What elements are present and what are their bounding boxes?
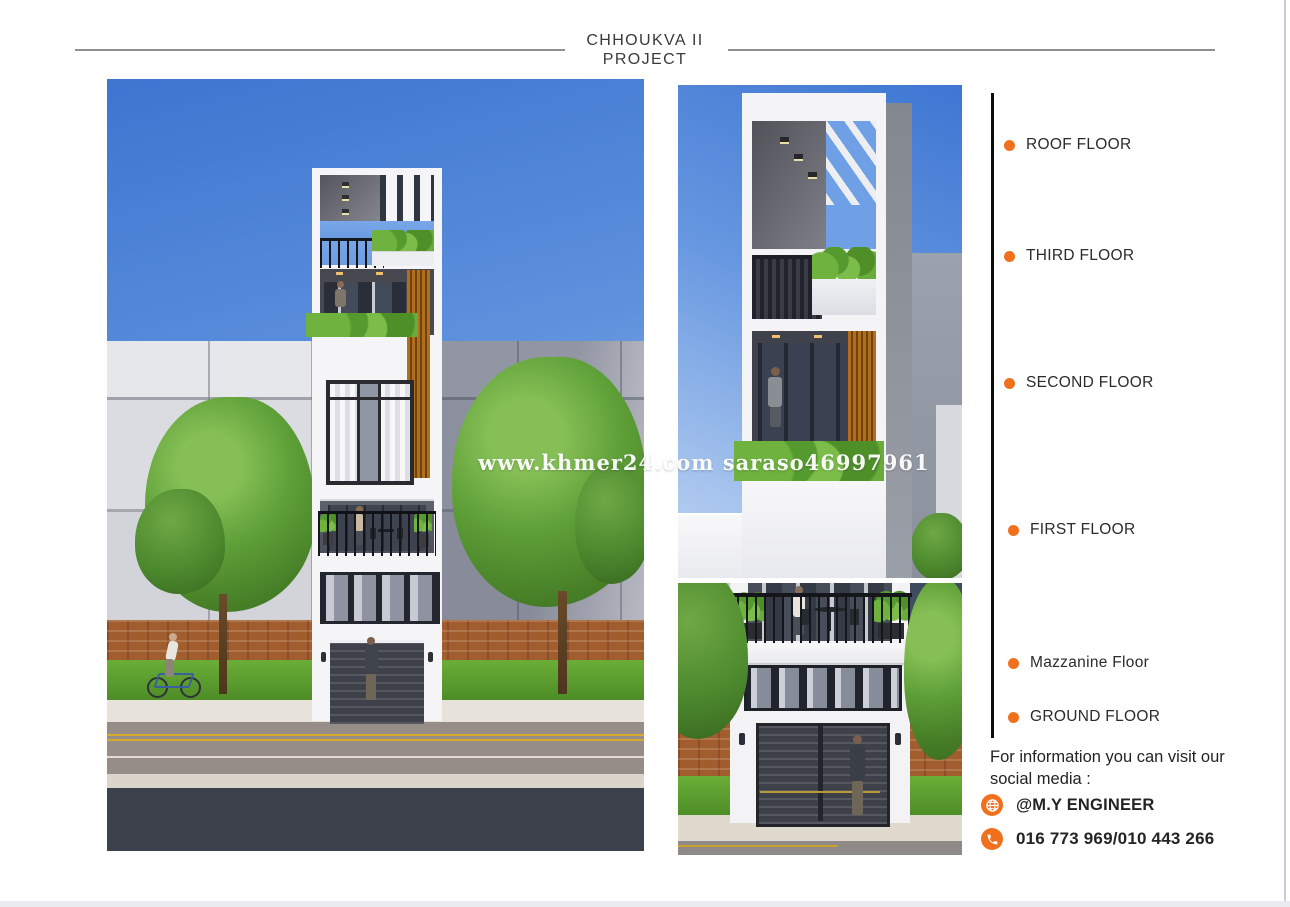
building-front (730, 583, 910, 823)
bullet-icon (1004, 251, 1015, 262)
floor-label-first: FIRST FLOOR (1008, 521, 1136, 539)
ceiling-light (342, 182, 349, 188)
door-divider (818, 723, 823, 821)
roof-plants (812, 247, 876, 281)
mezzanine-railing (318, 511, 436, 556)
wall-lamp (321, 652, 326, 662)
floor-label-text: SECOND FLOOR (1026, 374, 1154, 392)
roof-interior (752, 121, 876, 249)
cyclist-legs (165, 659, 174, 677)
pedestrian (363, 637, 379, 700)
balcony-person (332, 281, 348, 307)
balcony-railing (728, 593, 912, 650)
globe-icon (981, 794, 1003, 816)
glass-roller-doors (756, 723, 890, 827)
road-yellow-line (107, 734, 644, 736)
ceiling-light (342, 195, 349, 201)
bullet-icon (1008, 525, 1019, 536)
social-handle: @M.Y ENGINEER (1016, 796, 1155, 815)
third-floor (752, 331, 876, 455)
road-yellow-line (107, 739, 644, 741)
project-subtitle: PROJECT (540, 50, 750, 69)
project-poster-page: CHHOUKVA II PROJECT (0, 0, 1290, 907)
bullet-icon (1008, 658, 1019, 669)
contact-intro: For information you can visit our social… (990, 747, 1270, 791)
floor-label-text: THIRD FLOOR (1026, 247, 1134, 265)
floor-label-text: Mazzanine Floor (1030, 654, 1149, 672)
wood-slat-panel (848, 331, 876, 455)
person-body (365, 646, 378, 674)
roof-balcony (752, 249, 876, 315)
first-floor-windows (320, 572, 440, 624)
person-head (853, 735, 862, 744)
roof-planter-box (812, 279, 876, 315)
cornice-band (724, 643, 916, 663)
warm-light (336, 272, 343, 275)
person-body (850, 745, 865, 781)
hedge-right (904, 776, 962, 818)
person-legs (770, 407, 781, 427)
curb-strip (107, 774, 644, 788)
warm-light (376, 272, 383, 275)
wall-lamp (428, 652, 433, 662)
first-floor-windows (744, 665, 902, 711)
mezzanine-balcony (320, 499, 434, 553)
left-tree-lower (135, 489, 225, 594)
person-body (768, 377, 782, 407)
warm-light (772, 335, 780, 338)
warm-light (814, 335, 822, 338)
ceiling-light (780, 137, 789, 144)
second-floor-window (326, 380, 414, 485)
cyclist-head (169, 633, 177, 641)
perspective-render (678, 85, 962, 578)
roof-side-wall (752, 121, 826, 249)
tower-side-face (886, 103, 912, 578)
balcony-parapet (742, 481, 886, 578)
road (107, 722, 644, 774)
floor-label-ground: GROUND FLOOR (1008, 708, 1160, 726)
ground-closeup-render (678, 583, 962, 855)
right-tree-trunk (558, 591, 567, 694)
standing-man (848, 735, 866, 815)
floor-timeline-line (991, 93, 994, 738)
person-legs (852, 781, 863, 815)
page-edge (0, 901, 1290, 907)
wall-lamp (895, 733, 901, 745)
ceiling-light (808, 172, 817, 179)
floor-label-text: ROOF FLOOR (1026, 136, 1131, 154)
bullet-icon (1004, 140, 1015, 151)
roof-pergola-beams (826, 121, 876, 205)
floor-label-mezzanine: Mazzanine Floor (1008, 654, 1149, 672)
road-edge-line (107, 756, 644, 758)
left-tree-trunk (219, 594, 227, 694)
roof-pergola-slats (380, 175, 434, 225)
person-head (337, 281, 344, 288)
main-elevation-render (107, 79, 644, 851)
phone-icon (981, 828, 1003, 850)
person-head (367, 637, 375, 645)
cyclist (147, 631, 203, 697)
background-tree (911, 513, 962, 578)
social-handle-row: @M.Y ENGINEER (981, 794, 1155, 816)
third-floor-plants (306, 313, 418, 337)
floor-label-text: FIRST FLOOR (1030, 521, 1136, 539)
roof-balcony (320, 238, 434, 265)
phone-numbers: 016 773 969/010 443 266 (1016, 829, 1214, 849)
third-floor-plants (734, 441, 884, 481)
mezzanine-balcony (730, 583, 910, 645)
tree-right (904, 583, 962, 760)
wall-lamp (739, 733, 745, 745)
person-head (771, 367, 780, 376)
ceiling-light (342, 209, 349, 215)
window-transom (330, 397, 410, 400)
title-rule-right (728, 49, 1215, 51)
asphalt (107, 788, 644, 851)
right-tree-lower (575, 464, 644, 584)
page-title: CHHOUKVA II PROJECT (540, 31, 750, 69)
roof-interior (320, 175, 434, 238)
road-yellow-line (678, 845, 838, 847)
tower-front-face (742, 93, 886, 578)
person-legs (366, 674, 376, 700)
title-rule-left (75, 49, 565, 51)
hedge-left (678, 776, 738, 818)
bicycle-frame (154, 673, 195, 688)
project-name: CHHOUKVA II (540, 31, 750, 50)
bullet-icon (1008, 712, 1019, 723)
ceiling-light (794, 154, 803, 161)
balcony-person (766, 367, 784, 427)
phone-row: 016 773 969/010 443 266 (981, 828, 1214, 850)
floor-label-third: THIRD FLOOR (1004, 247, 1134, 265)
contact-intro-line1: For information you can visit our (990, 747, 1270, 769)
road (678, 841, 962, 855)
person-body (335, 289, 346, 307)
floor-label-second: SECOND FLOOR (1004, 374, 1154, 392)
floor-label-text: GROUND FLOOR (1030, 708, 1160, 726)
roof-plants (372, 230, 434, 252)
page-edge (1284, 0, 1286, 907)
contact-intro-line2: social media : (990, 769, 1270, 791)
floor-label-roof: ROOF FLOOR (1004, 136, 1131, 154)
bullet-icon (1004, 378, 1015, 389)
roof-planter-box (372, 251, 434, 266)
